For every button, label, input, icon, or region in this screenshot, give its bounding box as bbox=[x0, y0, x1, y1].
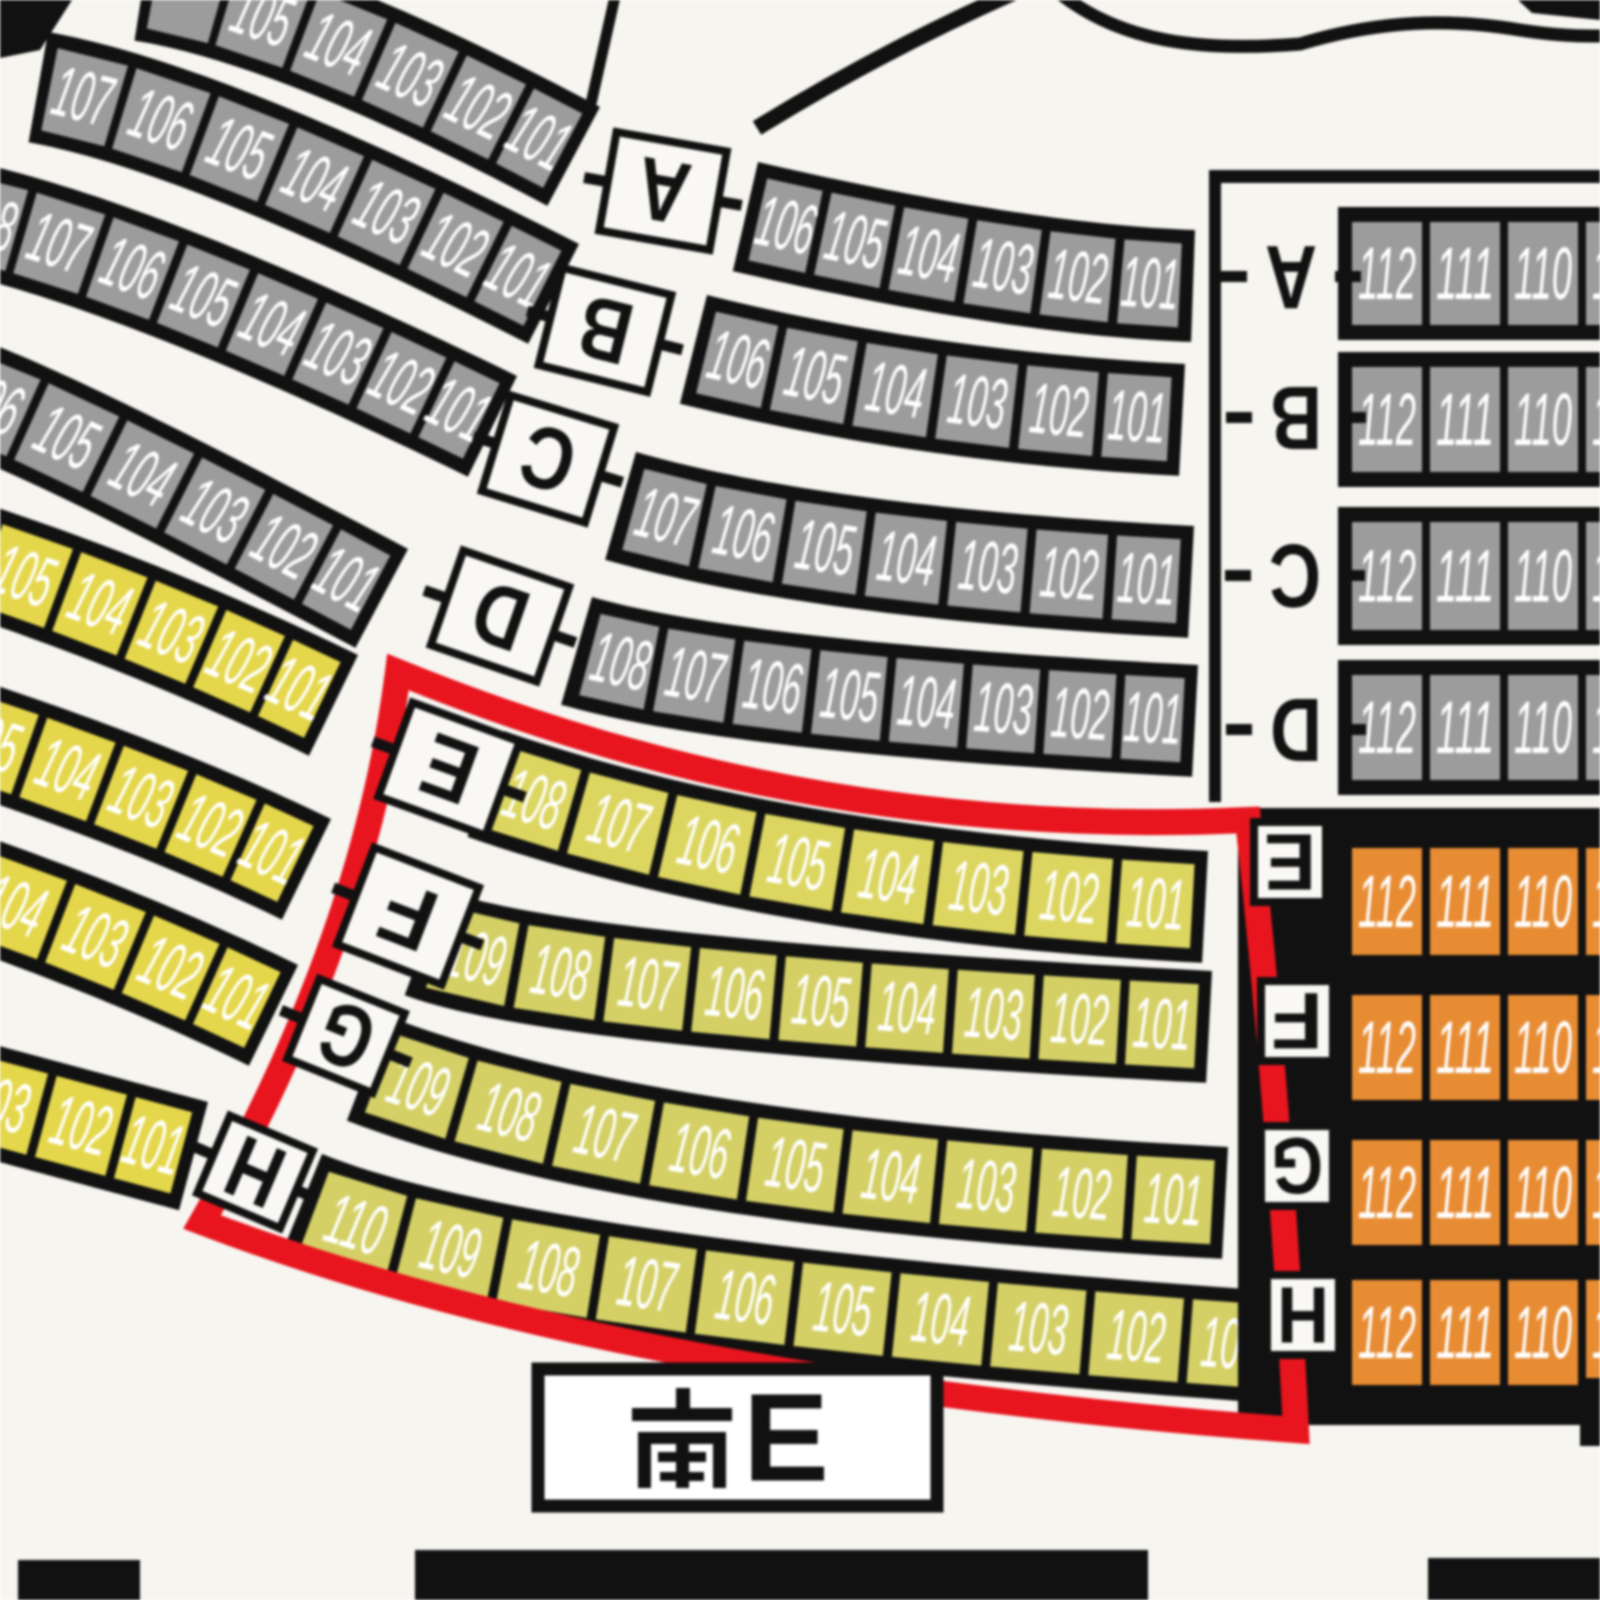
svg-text:105: 105 bbox=[810, 1266, 877, 1352]
svg-text:111: 111 bbox=[1436, 232, 1494, 315]
svg-text:101: 101 bbox=[1124, 862, 1187, 946]
svg-text:110: 110 bbox=[1514, 232, 1572, 315]
svg-text:111: 111 bbox=[1436, 1006, 1494, 1089]
svg-text:103: 103 bbox=[954, 1144, 1019, 1229]
svg-text:103: 103 bbox=[945, 846, 1012, 932]
svg-text:102: 102 bbox=[1049, 673, 1112, 757]
svg-text:101: 101 bbox=[1105, 375, 1168, 459]
svg-text:110: 110 bbox=[1514, 1291, 1572, 1374]
svg-text:109: 109 bbox=[1592, 378, 1600, 461]
svg-text:105: 105 bbox=[790, 504, 860, 592]
svg-text:101: 101 bbox=[1131, 983, 1193, 1066]
svg-text:110: 110 bbox=[1514, 535, 1572, 618]
svg-text:E: E bbox=[743, 1369, 829, 1508]
svg-text:104: 104 bbox=[873, 516, 940, 602]
svg-text:103: 103 bbox=[962, 972, 1025, 1056]
svg-text:112: 112 bbox=[1358, 860, 1416, 943]
svg-text:110: 110 bbox=[1514, 686, 1572, 769]
svg-text:110: 110 bbox=[1514, 1151, 1572, 1234]
svg-text:103: 103 bbox=[1006, 1286, 1071, 1371]
svg-text:111: 111 bbox=[1436, 686, 1494, 769]
svg-text:109: 109 bbox=[1592, 860, 1600, 943]
svg-text:112: 112 bbox=[1358, 686, 1416, 769]
svg-text:102: 102 bbox=[1026, 368, 1091, 453]
svg-text:111: 111 bbox=[1436, 1291, 1494, 1374]
svg-text:108: 108 bbox=[526, 929, 595, 1017]
svg-text:110: 110 bbox=[1514, 378, 1572, 461]
svg-text:112: 112 bbox=[1358, 535, 1416, 618]
svg-text:103: 103 bbox=[944, 359, 1012, 446]
svg-text:104: 104 bbox=[858, 1134, 924, 1220]
svg-text:111: 111 bbox=[1436, 860, 1494, 943]
svg-text:F: F bbox=[1271, 977, 1323, 1066]
svg-text:103: 103 bbox=[955, 525, 1020, 610]
svg-text:102: 102 bbox=[1050, 1152, 1114, 1236]
svg-text:102: 102 bbox=[1037, 855, 1102, 940]
svg-text:109: 109 bbox=[1592, 1006, 1600, 1089]
svg-text:109: 109 bbox=[1592, 232, 1600, 315]
svg-text:112: 112 bbox=[1358, 1151, 1416, 1234]
svg-text:104: 104 bbox=[908, 1277, 974, 1362]
svg-text:105: 105 bbox=[817, 653, 883, 739]
svg-text:102: 102 bbox=[1104, 1295, 1168, 1379]
svg-text:101: 101 bbox=[1122, 677, 1184, 760]
svg-text:110: 110 bbox=[1514, 860, 1572, 943]
svg-text:109: 109 bbox=[1592, 686, 1600, 769]
svg-text:105: 105 bbox=[761, 1122, 830, 1209]
svg-text:101: 101 bbox=[1118, 242, 1181, 326]
svg-text:G: G bbox=[1271, 1122, 1323, 1211]
svg-text:105: 105 bbox=[789, 959, 854, 1044]
svg-text:112: 112 bbox=[1358, 1291, 1416, 1374]
svg-text:110: 110 bbox=[1514, 1006, 1572, 1089]
svg-text:102: 102 bbox=[1045, 234, 1112, 320]
svg-text:103: 103 bbox=[968, 223, 1037, 311]
svg-text:109: 109 bbox=[1592, 1291, 1600, 1374]
svg-text:104: 104 bbox=[861, 346, 931, 434]
svg-text:E: E bbox=[1264, 818, 1316, 907]
svg-text:102: 102 bbox=[1048, 978, 1111, 1061]
svg-text:103: 103 bbox=[972, 667, 1036, 751]
svg-text:104: 104 bbox=[875, 966, 939, 1050]
svg-text:109: 109 bbox=[1592, 535, 1600, 618]
svg-text:106: 106 bbox=[711, 1254, 779, 1341]
svg-text:A: A bbox=[1265, 226, 1317, 326]
svg-text:111: 111 bbox=[1436, 378, 1494, 461]
svg-text:112: 112 bbox=[1358, 1006, 1416, 1089]
svg-text:101: 101 bbox=[1115, 538, 1178, 621]
svg-text:111: 111 bbox=[1436, 1151, 1494, 1234]
svg-text:C: C bbox=[1269, 525, 1321, 625]
svg-text:101: 101 bbox=[1142, 1158, 1205, 1241]
svg-text:106: 106 bbox=[739, 643, 807, 730]
svg-text:107: 107 bbox=[614, 941, 682, 1027]
svg-text:102: 102 bbox=[1037, 532, 1101, 616]
svg-text:104: 104 bbox=[894, 660, 959, 745]
svg-text:109: 109 bbox=[1592, 1151, 1600, 1234]
svg-text:104: 104 bbox=[854, 833, 923, 920]
svg-text:111: 111 bbox=[1436, 535, 1494, 618]
svg-text:H: H bbox=[1277, 1271, 1329, 1360]
svg-text:112: 112 bbox=[1358, 232, 1416, 315]
svg-text:B: B bbox=[1270, 367, 1322, 467]
svg-text:106: 106 bbox=[702, 951, 768, 1036]
svg-text:D: D bbox=[1270, 679, 1322, 779]
svg-text:112: 112 bbox=[1358, 378, 1416, 461]
